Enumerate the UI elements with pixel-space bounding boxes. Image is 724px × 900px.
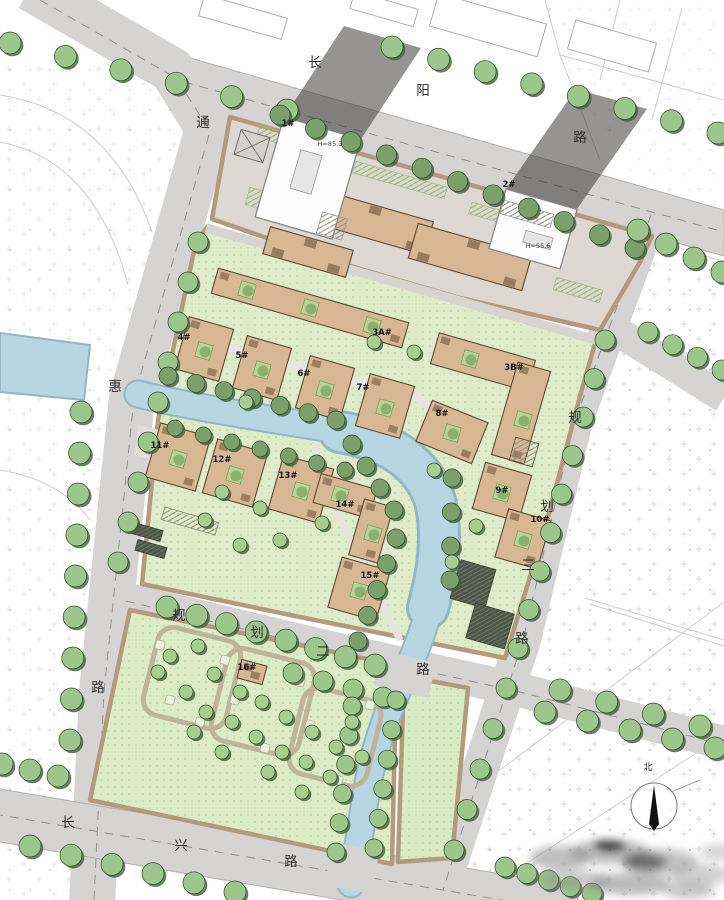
road-name-char-guihua-3: 三: [521, 558, 535, 574]
road-name-char-guihua-2: 二: [316, 644, 330, 660]
road-name-char-changyang: 阳: [416, 83, 430, 99]
courtyard-tree: [258, 366, 269, 377]
tree: [428, 48, 452, 72]
building-label: 9#: [495, 486, 508, 496]
tree: [521, 73, 545, 97]
park-path-node: [155, 640, 166, 651]
watermark-blob: [590, 873, 670, 895]
building-label: 15#: [361, 571, 380, 581]
courtyard-tree: [306, 304, 317, 315]
building-label: 13#: [279, 471, 298, 481]
courtyard-tree: [466, 355, 477, 366]
courtyard-tree: [381, 404, 392, 415]
building-label: 11#: [151, 441, 170, 451]
courtyard-tree: [243, 286, 254, 297]
canal-west: [0, 333, 90, 400]
road-name-char-changxing: 路: [284, 854, 298, 870]
road-name-char-guihua-3: 规: [568, 410, 582, 426]
road-name-char-changxing: 长: [61, 815, 75, 831]
elevation-annotation: H=55.6: [526, 242, 551, 250]
road-name-char-guihua-3: 划: [540, 499, 554, 515]
courtyard-tree: [369, 530, 380, 541]
watermark-blob: [623, 854, 667, 870]
road-name-char-guihua-2: 路: [416, 662, 430, 678]
road-name-char-tonghui: 惠: [108, 379, 122, 395]
park-path-node: [220, 655, 231, 666]
building-label: 1#: [281, 119, 294, 129]
courtyard-tree: [231, 471, 242, 482]
courtyard-tree: [200, 347, 211, 358]
road-name-char-changxing: 兴: [174, 838, 188, 854]
building-label: 4#: [177, 333, 190, 343]
road-name-char-tonghui: 路: [91, 680, 105, 696]
building-label: 12#: [213, 455, 232, 465]
building-label: 7#: [356, 383, 369, 393]
road-name-char-guihua-2: 划: [250, 625, 264, 641]
site-plan-svg: 长阳路通惠路长兴路规划二路规划三路1#2#3A#3B#4#5#6#7#8#9#1…: [0, 0, 724, 900]
courtyard-tree: [519, 536, 530, 547]
building-label: 16#: [238, 663, 257, 673]
road-name-char-changyang: 长: [308, 55, 322, 71]
road-name-char-guihua-3: 路: [515, 631, 529, 647]
compass-label: 北: [643, 762, 652, 773]
building-label: 3A#: [372, 328, 392, 338]
courtyard-tree: [297, 487, 308, 498]
road-name-char-changyang: 路: [573, 130, 587, 146]
existing-building: [429, 0, 546, 57]
tree: [0, 32, 23, 56]
building-label: 6#: [297, 369, 310, 379]
building-label: 14#: [336, 500, 355, 510]
courtyard-tree: [174, 455, 185, 466]
building-label: 5#: [235, 351, 248, 361]
road-name-char-guihua-2: 规: [172, 608, 186, 624]
tree: [474, 61, 498, 85]
elevation-annotation: H=85.3: [318, 140, 343, 148]
watermark-blob: [594, 841, 610, 849]
site-plan: 长阳路通惠路长兴路规划二路规划三路1#2#3A#3B#4#5#6#7#8#9#1…: [0, 0, 724, 900]
road-name-char-tonghui: 通: [196, 115, 210, 131]
existing-building: [350, 0, 418, 27]
courtyard-tree: [519, 416, 530, 427]
building-label: 8#: [435, 409, 448, 419]
building-label: 2#: [502, 180, 515, 190]
courtyard-tree: [355, 587, 366, 598]
building-label: 10#: [531, 515, 550, 525]
courtyard-tree: [321, 386, 332, 397]
existing-building: [199, 0, 288, 39]
watermark-blob: [662, 881, 714, 899]
courtyard-tree: [448, 429, 459, 440]
building-label: 3B#: [504, 363, 524, 373]
park-path-node: [165, 695, 176, 706]
